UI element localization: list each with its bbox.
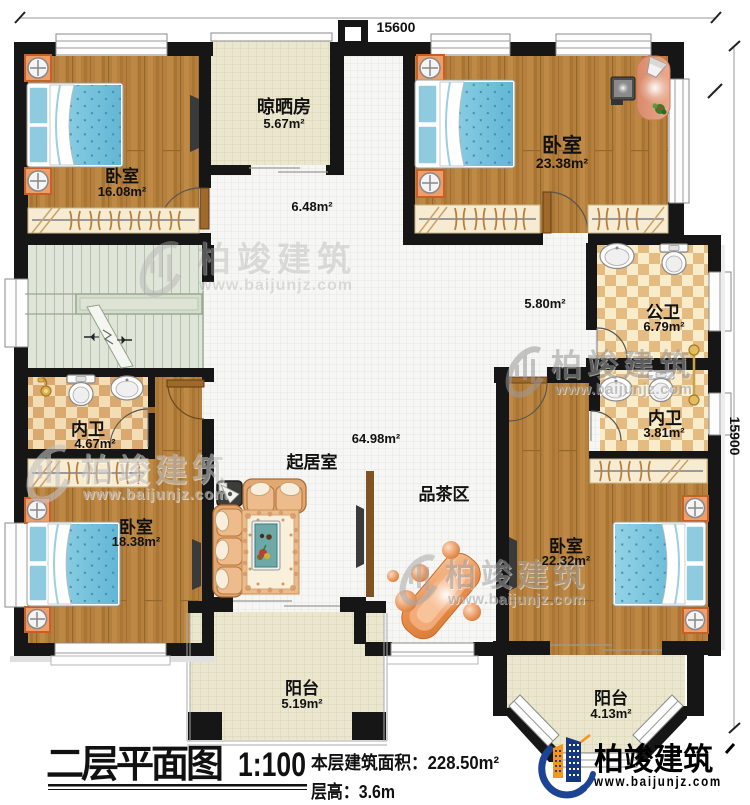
svg-text:5.67m²: 5.67m² [263, 116, 305, 131]
svg-text:22.32m²: 22.32m² [542, 553, 591, 568]
svg-text:柏竣建筑: 柏竣建筑 [81, 452, 229, 488]
svg-text:3.81m²: 3.81m² [643, 425, 685, 440]
svg-text:www.baijunjz.com: www.baijunjz.com [554, 381, 692, 398]
svg-text:二层平面图: 二层平面图 [46, 744, 224, 786]
svg-text:6.79m²: 6.79m² [643, 319, 685, 334]
svg-text:阳台: 阳台 [285, 678, 319, 698]
svg-text:15600: 15600 [377, 19, 416, 35]
svg-text:5.80m²: 5.80m² [524, 296, 566, 311]
svg-text:卧室: 卧室 [542, 133, 582, 157]
svg-text:品茶区: 品茶区 [419, 484, 470, 504]
svg-text:柏竣建筑: 柏竣建筑 [594, 742, 713, 777]
svg-text:www.baijunjz.com: www.baijunjz.com [82, 486, 228, 503]
svg-text:本层建筑面积：228.50m²: 本层建筑面积：228.50m² [311, 752, 499, 773]
svg-text:层高：3.6m: 层高：3.6m [311, 781, 395, 802]
svg-text:晾晒房: 晾晒房 [257, 96, 311, 117]
svg-text:www.baijunjz.com: www.baijunjz.com [593, 774, 722, 789]
svg-text:柏竣建筑: 柏竣建筑 [197, 240, 357, 279]
svg-text:5.19m²: 5.19m² [281, 696, 323, 711]
svg-text:4.67m²: 4.67m² [74, 436, 116, 451]
svg-text:6.48m²: 6.48m² [291, 199, 333, 214]
svg-text:起居室: 起居室 [286, 452, 338, 472]
svg-text:卧室: 卧室 [105, 166, 139, 186]
svg-text:15900: 15900 [727, 417, 743, 456]
svg-text:4.13m²: 4.13m² [590, 706, 632, 721]
svg-text:1:100: 1:100 [238, 746, 306, 784]
svg-text:16.08m²: 16.08m² [98, 184, 147, 199]
svg-text:www.baijunjz.com: www.baijunjz.com [198, 277, 353, 294]
svg-text:23.38m²: 23.38m² [536, 155, 588, 171]
svg-text:www.baijunjz.com: www.baijunjz.com [447, 591, 585, 608]
svg-text:18.38m²: 18.38m² [112, 534, 161, 549]
svg-text:阳台: 阳台 [594, 688, 628, 708]
svg-text:柏竣建筑: 柏竣建筑 [551, 348, 695, 383]
svg-text:64.98m²: 64.98m² [352, 431, 401, 446]
